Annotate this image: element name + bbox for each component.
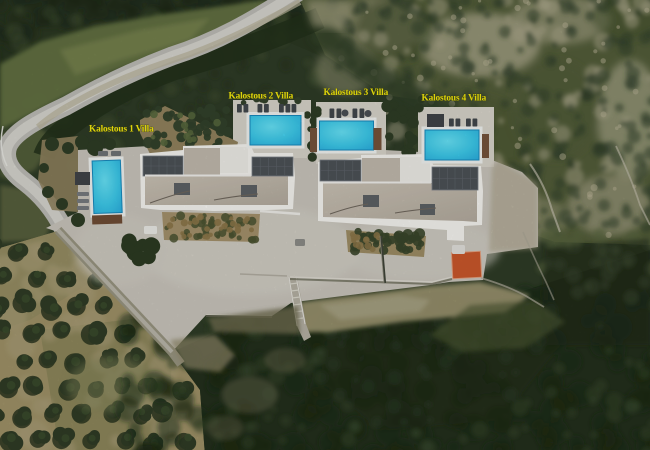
svg-text:Kalostous 1 Villa: Kalostous 1 Villa [89, 125, 154, 135]
svg-text:Kalostous 4 Villa: Kalostous 4 Villa [422, 94, 487, 104]
svg-text:Kalostous 2 Villa: Kalostous 2 Villa [229, 92, 294, 102]
svg-text:Kalostous 3 Villa: Kalostous 3 Villa [324, 88, 389, 98]
